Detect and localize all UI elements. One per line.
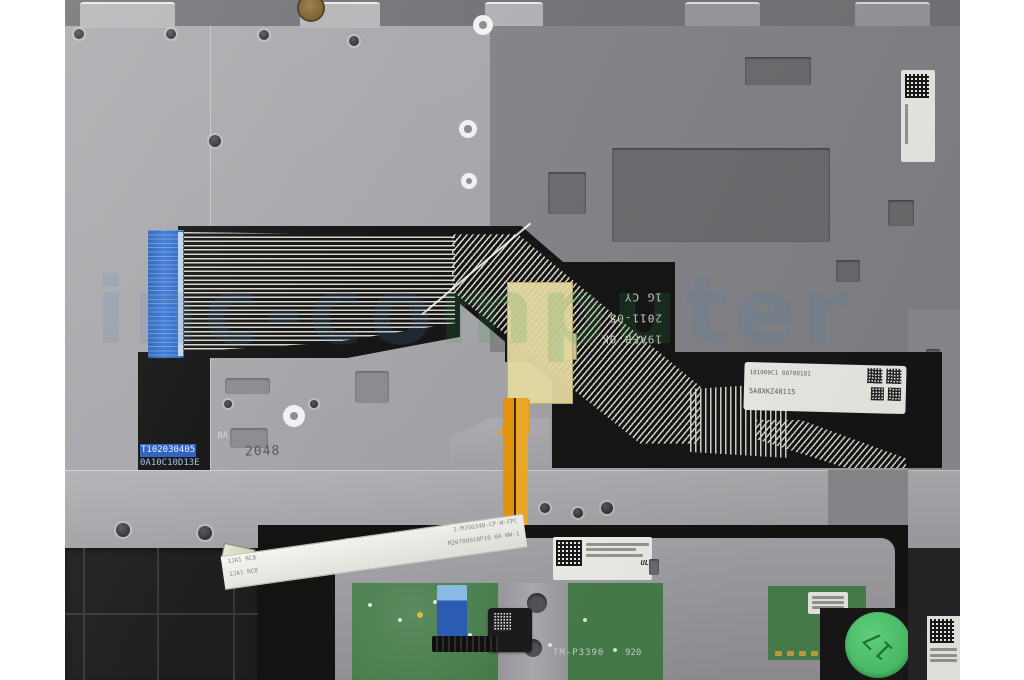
plate-recess xyxy=(355,371,389,403)
screw xyxy=(259,30,269,40)
screw xyxy=(166,29,176,39)
plate-cutout xyxy=(548,172,586,214)
ribbon-text: 1JA1 RC8 xyxy=(229,567,259,578)
flex-label-line2: 5A8XKZ40115 xyxy=(749,387,867,398)
grid-line xyxy=(65,613,258,615)
datamatrix-icon xyxy=(888,388,901,401)
bracket-slot xyxy=(649,559,659,575)
plate-tab xyxy=(685,2,760,28)
plate-stamp: 2048 xyxy=(245,443,281,459)
screw xyxy=(224,400,232,408)
plate-tab xyxy=(855,2,930,28)
watermark-part: mpu xyxy=(439,258,684,365)
plate-cutout xyxy=(612,148,830,242)
qr-code-icon xyxy=(905,74,929,98)
palmrest-photo: 2048 19AFB-0K 2011-05 1G CY 181000C1 007… xyxy=(65,0,960,680)
watermark: inc-computer xyxy=(95,258,955,365)
screw xyxy=(601,502,613,514)
flex-tail-label: 8A T102030405 0A10C10D13E xyxy=(140,430,228,471)
top-right-vertical-label xyxy=(901,70,935,162)
flex-label-line1: 181000C1 00700181 xyxy=(749,369,863,379)
ul-mark: UL xyxy=(641,559,649,567)
standoff-hole xyxy=(473,15,493,35)
datamatrix-icon xyxy=(886,369,901,384)
tail-label-line3: 0A10C10D13E xyxy=(140,457,228,471)
tail-label-line1: 8A xyxy=(140,430,228,444)
screw xyxy=(310,400,318,408)
touchpad-controller-rev: 920 xyxy=(625,648,641,658)
qr-code-icon xyxy=(556,540,582,566)
tail-label-line2: T102030405 xyxy=(140,444,196,458)
standoff-hole xyxy=(459,120,477,138)
right-edge-label xyxy=(927,616,960,680)
touchpad-ffc-connector xyxy=(437,585,467,637)
standoff-hole xyxy=(283,405,305,427)
screw xyxy=(349,36,359,46)
standoff-hole xyxy=(461,173,477,189)
watermark-part: inc-co xyxy=(95,258,439,365)
screw xyxy=(116,523,130,537)
flex-barcode-label: 181000C1 00700181 5A8XKZ40115 xyxy=(743,362,906,414)
watermark-part: ter xyxy=(684,258,854,365)
plate-tab xyxy=(80,2,175,28)
ribbon-text: 1JA1 RC8 xyxy=(227,554,257,565)
plate-tab xyxy=(485,2,543,28)
plate-cutout xyxy=(888,200,914,226)
touchpad-qr-label: UL xyxy=(553,537,652,580)
touchpad-controller-marking: TM-P3390 xyxy=(553,648,604,658)
qc-sticker: 17 xyxy=(845,612,911,678)
datamatrix-icon xyxy=(871,387,884,400)
plate-cutout xyxy=(745,57,811,85)
screw xyxy=(209,135,221,147)
ribbon-text: M20700010P10 04 WW-1 xyxy=(447,530,520,547)
screw xyxy=(573,508,583,518)
chip-datamatrix-icon xyxy=(493,613,511,631)
qr-code-icon xyxy=(930,619,954,643)
screw xyxy=(74,29,84,39)
screw xyxy=(540,503,550,513)
datamatrix-icon xyxy=(867,368,882,383)
screw xyxy=(198,526,212,540)
qc-sticker-number: 17 xyxy=(857,624,898,665)
plate-recess xyxy=(225,378,270,394)
touchpad-connector-body xyxy=(432,636,498,652)
